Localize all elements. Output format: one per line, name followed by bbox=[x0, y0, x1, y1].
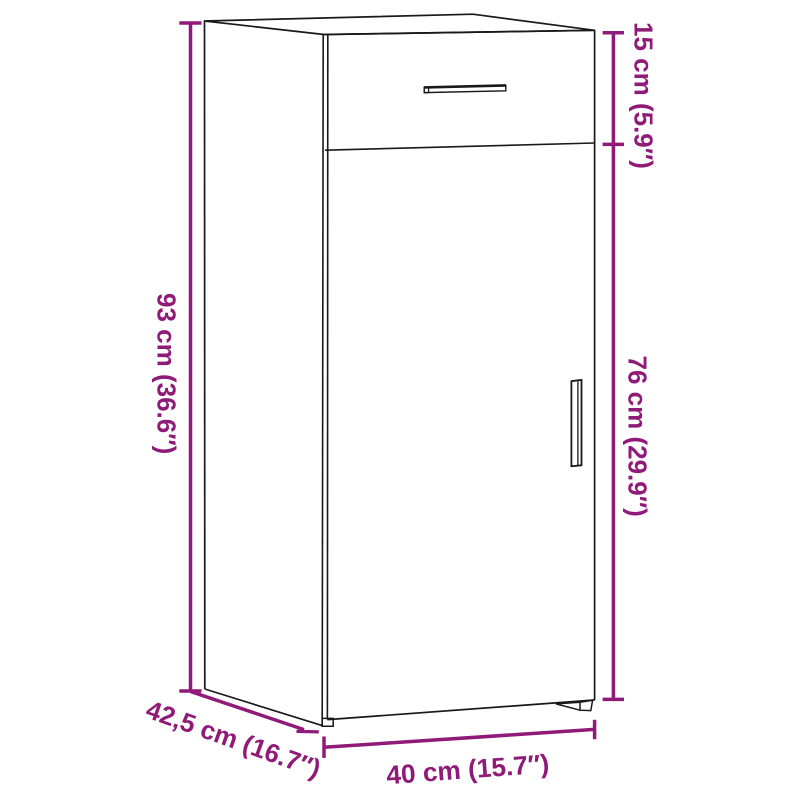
svg-text:15 cm (5.9″): 15 cm (5.9″) bbox=[629, 22, 659, 169]
svg-text:76 cm (29.9″): 76 cm (29.9″) bbox=[623, 356, 653, 517]
svg-text:93 cm (36.6″): 93 cm (36.6″) bbox=[152, 293, 182, 454]
